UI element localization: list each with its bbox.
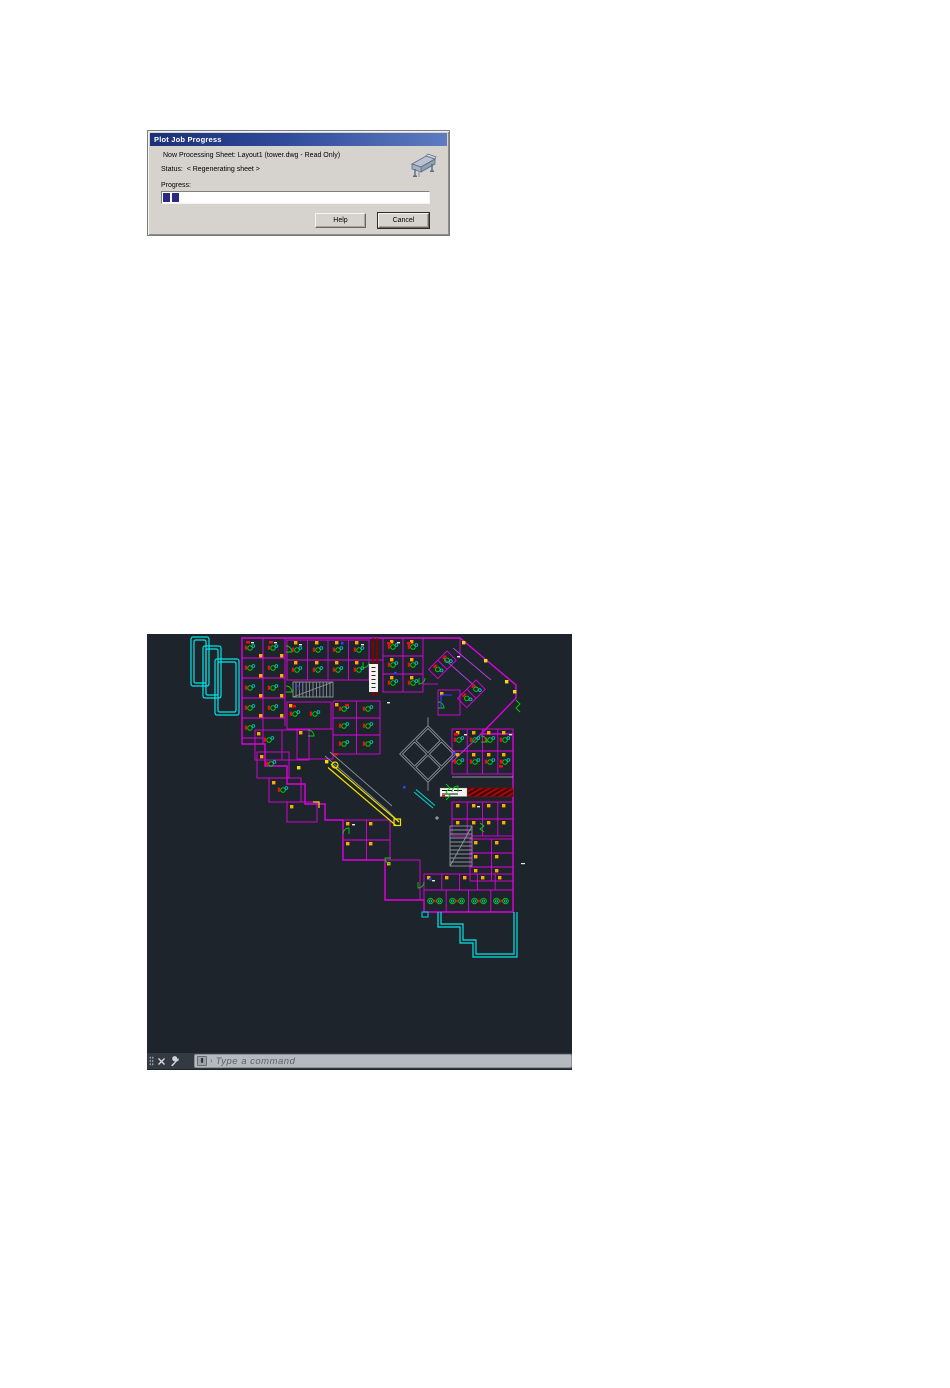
drag-grip-icon[interactable] [149, 1056, 154, 1066]
progress-segment [163, 193, 170, 202]
document-page: Plot Job Progress Now Processing Sheet: … [0, 0, 950, 1388]
progress-segment [172, 193, 179, 202]
plotter-icon [406, 149, 440, 181]
progress-label: Progress: [161, 182, 191, 189]
dialog-titlebar[interactable]: Plot Job Progress [150, 133, 447, 146]
command-caret: › [210, 1056, 213, 1066]
autocad-drawing-window: ▮ › Type a command [147, 634, 572, 1070]
status-value: < Regenerating sheet > [187, 166, 260, 173]
dialog-title: Plot Job Progress [154, 135, 222, 144]
command-line-bar: ▮ › Type a command [147, 1053, 572, 1069]
close-icon[interactable] [157, 1057, 166, 1066]
plot-job-progress-dialog: Plot Job Progress Now Processing Sheet: … [147, 130, 450, 236]
status-text: Status: < Regenerating sheet > [161, 166, 260, 173]
command-placeholder: Type a command [216, 1056, 296, 1067]
progress-bar [161, 191, 430, 204]
processing-sheet-text: Now Processing Sheet: Layout1 (tower.dwg… [163, 152, 340, 159]
cancel-button[interactable]: Cancel [378, 213, 429, 228]
command-input[interactable]: ▮ › Type a command [194, 1054, 572, 1068]
help-button[interactable]: Help [315, 213, 366, 228]
command-dock [147, 1053, 193, 1069]
keyboard-icon: ▮ [197, 1056, 207, 1066]
wrench-icon[interactable] [169, 1056, 180, 1067]
floor-plan-canvas[interactable] [147, 634, 572, 1070]
